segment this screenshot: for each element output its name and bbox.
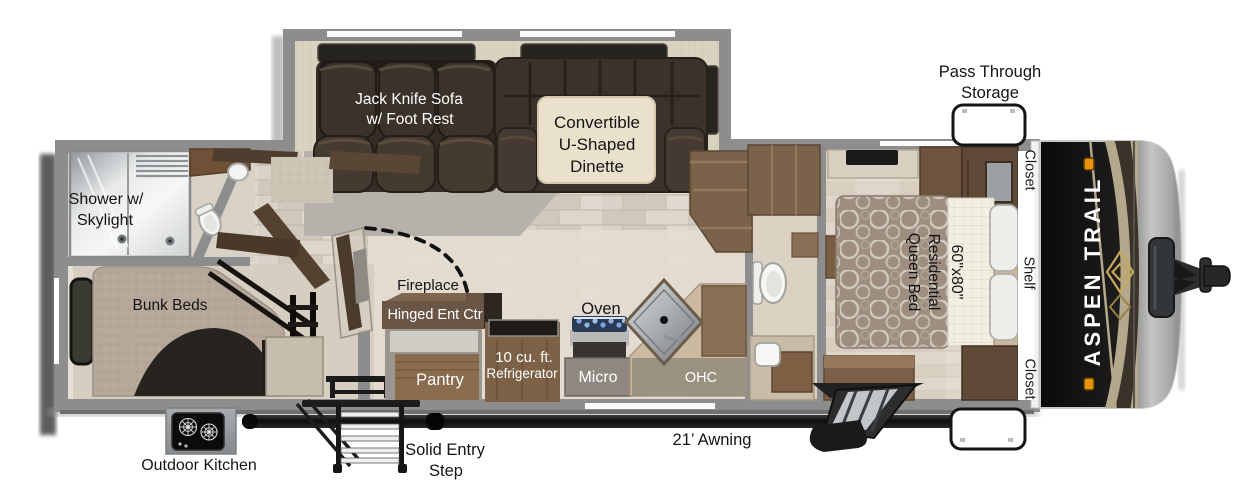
svg-text:60"x80": 60"x80" bbox=[948, 245, 965, 300]
svg-text:Shelf: Shelf bbox=[1021, 256, 1037, 290]
svg-text:Oven: Oven bbox=[581, 300, 620, 318]
svg-text:Convertible: Convertible bbox=[554, 113, 640, 132]
svg-text:Micro: Micro bbox=[578, 369, 617, 386]
svg-text:Skylight: Skylight bbox=[77, 212, 134, 229]
svg-text:Hinged Ent Ctr: Hinged Ent Ctr bbox=[387, 307, 482, 323]
svg-text:Shower w/: Shower w/ bbox=[69, 191, 144, 208]
svg-text:Fireplace: Fireplace bbox=[397, 277, 459, 294]
svg-text:Queen Bed: Queen Bed bbox=[905, 233, 922, 311]
svg-text:Storage: Storage bbox=[961, 84, 1019, 102]
svg-text:Jack Knife Sofa: Jack Knife Sofa bbox=[355, 91, 463, 108]
svg-text:Solid Entry: Solid Entry bbox=[405, 441, 486, 459]
svg-text:w/ Foot Rest: w/ Foot Rest bbox=[366, 111, 455, 128]
svg-text:10 cu. ft.: 10 cu. ft. bbox=[495, 349, 553, 366]
svg-text:Dinette: Dinette bbox=[570, 157, 624, 176]
svg-text:U-Shaped: U-Shaped bbox=[559, 135, 636, 154]
svg-text:Pantry: Pantry bbox=[416, 371, 464, 389]
svg-text:Outdoor Kitchen: Outdoor Kitchen bbox=[141, 457, 257, 474]
svg-text:Refrigerator: Refrigerator bbox=[486, 366, 558, 381]
svg-text:Closet: Closet bbox=[1022, 358, 1038, 399]
svg-text:Bunk Beds: Bunk Beds bbox=[133, 297, 208, 314]
svg-text:OHC: OHC bbox=[685, 370, 717, 386]
svg-text:21’ Awning: 21’ Awning bbox=[673, 431, 752, 449]
svg-text:Closet: Closet bbox=[1022, 149, 1038, 190]
svg-text:Residential: Residential bbox=[925, 234, 942, 311]
svg-text:Pass Through: Pass Through bbox=[939, 63, 1041, 81]
svg-text:Step: Step bbox=[429, 462, 463, 480]
svg-text:ASPEN TRAIL: ASPEN TRAIL bbox=[1080, 176, 1105, 367]
